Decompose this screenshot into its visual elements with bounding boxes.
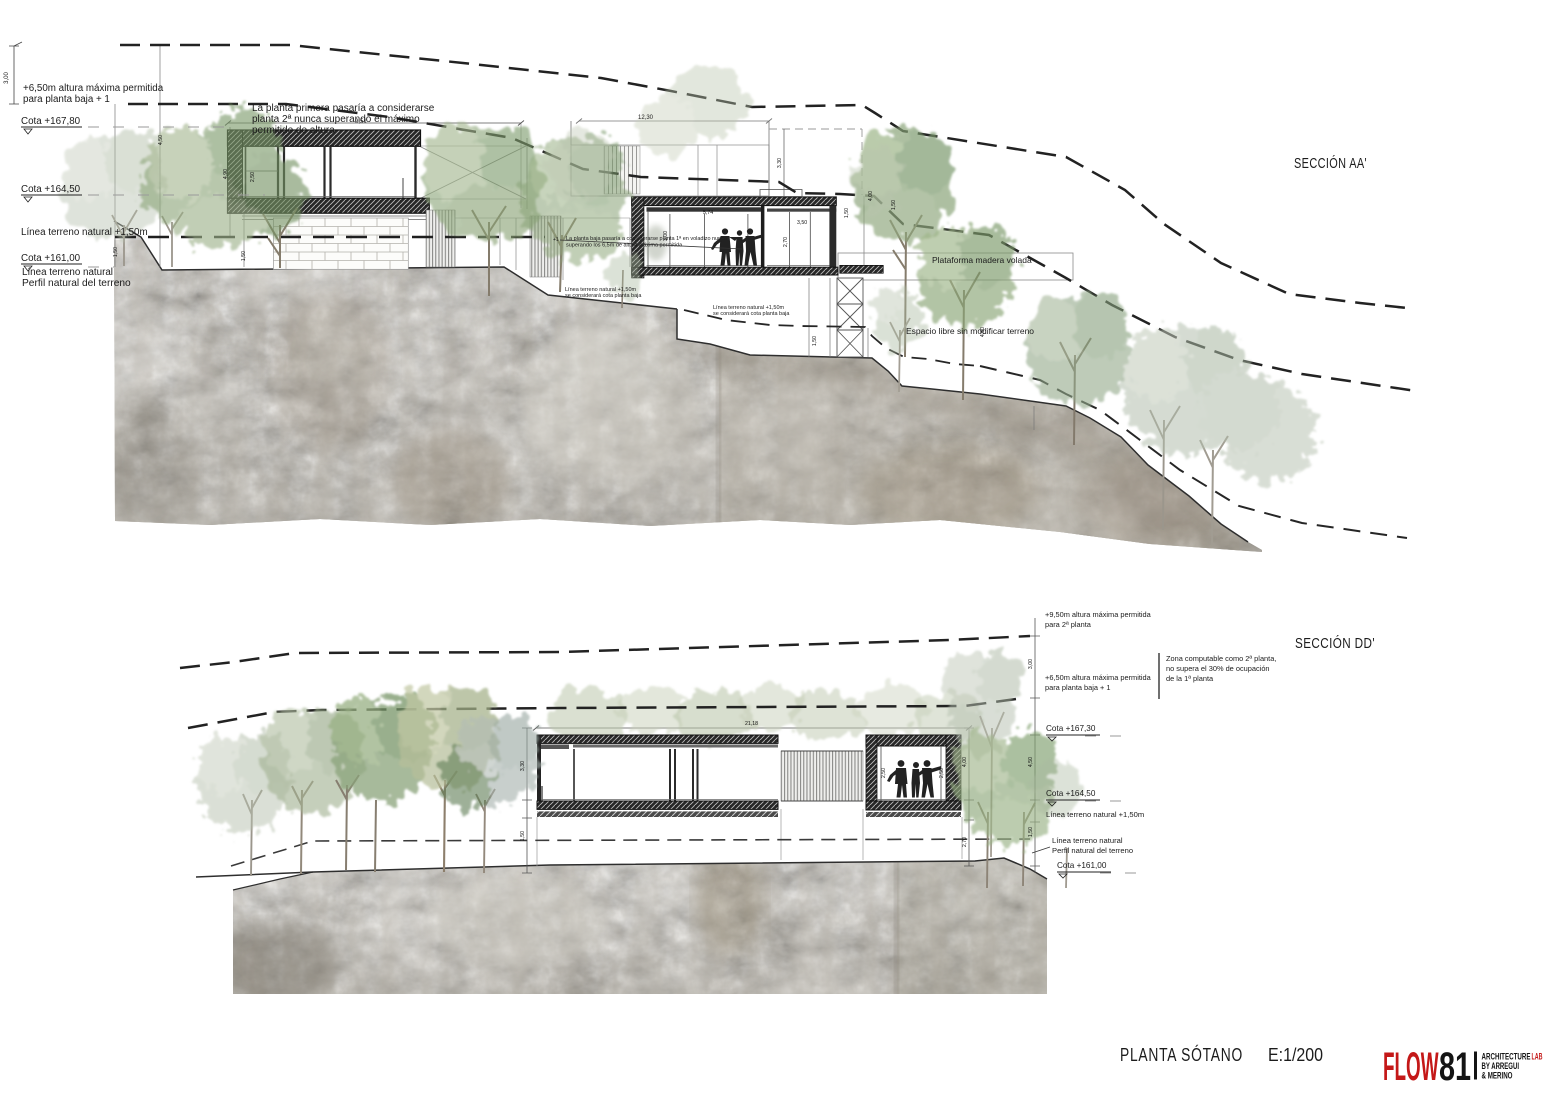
svg-text:SECCIÓN AA': SECCIÓN AA' — [1294, 155, 1367, 172]
svg-text:2,70: 2,70 — [962, 837, 968, 847]
svg-text:1,50: 1,50 — [241, 251, 247, 261]
svg-text:12,30: 12,30 — [638, 115, 654, 121]
svg-text:Cota +164,50: Cota +164,50 — [21, 184, 81, 195]
svg-text:3,30: 3,30 — [777, 158, 783, 168]
svg-text:PLANTA SÓTANO: PLANTA SÓTANO — [1120, 1044, 1243, 1065]
svg-text:3,30: 3,30 — [520, 761, 526, 771]
svg-text:La planta primera pasaría a co: La planta primera pasaría a considerarse — [252, 103, 435, 114]
svg-text:Línea terreno natural: Línea terreno natural — [22, 267, 113, 278]
svg-text:Cota +167,80: Cota +167,80 — [21, 116, 81, 127]
svg-text:LAB: LAB — [1532, 1051, 1543, 1062]
svg-text:2,50: 2,50 — [250, 172, 256, 182]
svg-text:Espacio libre sin modificar te: Espacio libre sin modificar terreno — [906, 326, 1034, 336]
svg-text:para 2ª planta: para 2ª planta — [1045, 620, 1092, 629]
svg-text:FLOW: FLOW — [1383, 1045, 1439, 1089]
svg-text:Perfil natural del terreno: Perfil natural del terreno — [1052, 846, 1133, 855]
svg-text:& MERINO: & MERINO — [1482, 1071, 1513, 1082]
svg-text:E:1/200: E:1/200 — [1268, 1044, 1323, 1065]
svg-text:5,74: 5,74 — [703, 210, 713, 216]
svg-text:9,51: 9,51 — [355, 119, 367, 125]
svg-text:1,50: 1,50 — [891, 200, 897, 210]
svg-text:21,18: 21,18 — [745, 721, 758, 727]
svg-text:Línea terreno natural +1,50m: Línea terreno natural +1,50m — [21, 227, 148, 238]
svg-text:se considerará cota planta baj: se considerará cota planta baja — [713, 311, 790, 317]
svg-text:planta 2ª nunca superando el m: planta 2ª nunca superando el máximo — [252, 114, 420, 125]
svg-text:2,50: 2,50 — [881, 768, 887, 778]
svg-text:+6,50m altura máxima permitida: +6,50m altura máxima permitida — [23, 83, 164, 94]
svg-text:para planta baja + 1: para planta baja + 1 — [1045, 683, 1111, 692]
svg-text:4,50: 4,50 — [980, 327, 986, 337]
svg-text:4,50: 4,50 — [1028, 757, 1034, 767]
svg-text:Zona computable como 2ª planta: Zona computable como 2ª planta, — [1166, 654, 1276, 663]
svg-text:3,00: 3,00 — [1028, 659, 1034, 669]
svg-text:+9,50m altura máxima permitida: +9,50m altura máxima permitida — [1045, 610, 1152, 619]
svg-text:no supera el 30% de ocupación: no supera el 30% de ocupación — [1166, 664, 1270, 673]
svg-text:+1: +1 — [553, 237, 559, 243]
svg-text:4,00: 4,00 — [962, 757, 968, 767]
svg-text:Cota +164,50: Cota +164,50 — [1046, 789, 1096, 798]
svg-text:Cota +167,30: Cota +167,30 — [1046, 724, 1096, 733]
svg-text:permitido de altura: permitido de altura — [252, 125, 335, 136]
svg-text:4,90: 4,90 — [223, 169, 229, 179]
svg-text:Perfil natural del terreno: Perfil natural del terreno — [22, 278, 131, 289]
svg-text:SECCIÓN DD': SECCIÓN DD' — [1295, 635, 1375, 652]
svg-text:1,50: 1,50 — [1028, 827, 1034, 837]
svg-text:2,50: 2,50 — [939, 768, 945, 778]
svg-text:Cota +161,00: Cota +161,00 — [21, 253, 81, 264]
svg-text:4,00: 4,00 — [868, 191, 874, 201]
svg-text:3,50: 3,50 — [797, 220, 807, 226]
svg-text:3,00: 3,00 — [4, 72, 10, 84]
svg-text:1,50: 1,50 — [844, 208, 850, 218]
svg-text:1,50: 1,50 — [520, 831, 526, 841]
svg-text:Línea terreno natural +1,50m: Línea terreno natural +1,50m — [1046, 810, 1144, 819]
svg-text:2,70: 2,70 — [783, 237, 789, 247]
svg-text:81: 81 — [1439, 1045, 1471, 1089]
svg-text:1,50: 1,50 — [113, 247, 119, 257]
svg-text:4,50: 4,50 — [158, 135, 164, 145]
svg-text:1,50: 1,50 — [812, 336, 818, 346]
svg-text:Plataforma madera volada: Plataforma madera volada — [932, 255, 1032, 265]
svg-text:Línea terreno natural: Línea terreno natural — [1052, 836, 1123, 845]
svg-text:La planta baja pasaría a consi: La planta baja pasaría a considerarse pl… — [566, 235, 728, 242]
svg-text:Cota +161,00: Cota +161,00 — [1057, 861, 1107, 870]
svg-text:+6,50m altura máxima permitida: +6,50m altura máxima permitida — [1045, 673, 1152, 682]
svg-text:para planta baja + 1: para planta baja + 1 — [23, 94, 110, 105]
svg-text:de la 1ª planta: de la 1ª planta — [1166, 674, 1214, 683]
svg-text:se considerará cota planta baj: se considerará cota planta baja — [565, 293, 642, 299]
svg-text:3,00: 3,00 — [663, 231, 669, 241]
